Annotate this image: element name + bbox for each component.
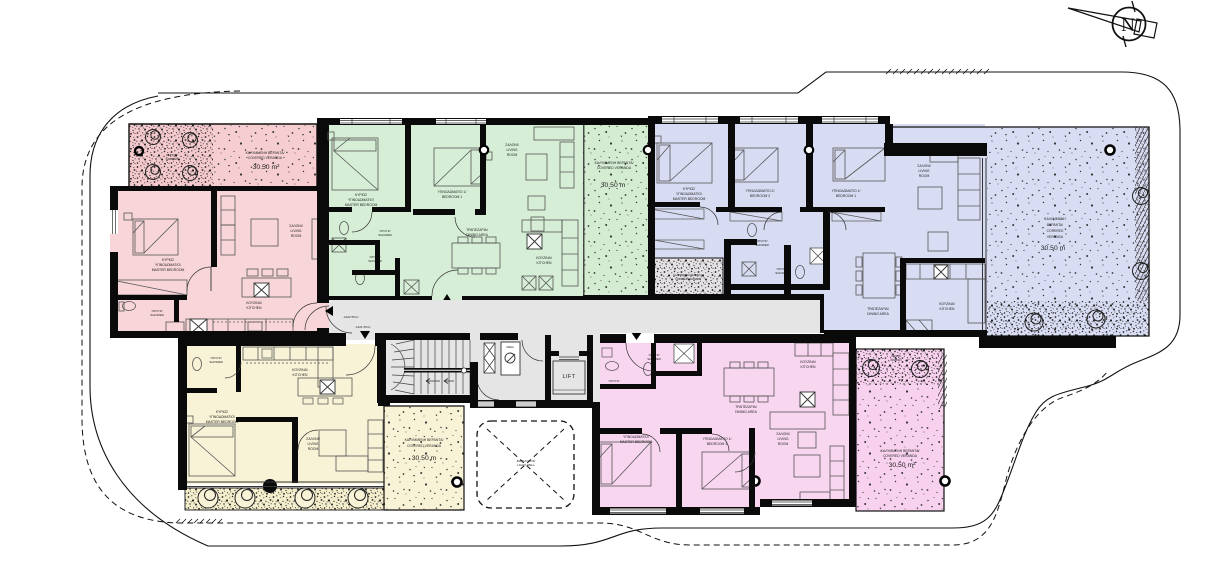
svg-text:ΥΠΝΟΔΩΜΑΤΙΟ 2/: ΥΠΝΟΔΩΜΑΤΙΟ 2/ [746, 189, 775, 193]
svg-text:BEDROOM 1: BEDROOM 1 [442, 195, 462, 199]
svg-text:ΣΑΛΟΝΙ/: ΣΑΛΟΝΙ/ [505, 143, 519, 147]
svg-text:Α101 55m²: Α101 55m² [356, 325, 371, 329]
svg-text:ΚΥΡΙΩΣ: ΚΥΡΙΩΣ [162, 258, 174, 262]
svg-text:SHOWER: SHOWER [150, 313, 164, 317]
svg-text:ΥΠΝΟΔΩΜΑΤΙΟ/: ΥΠΝΟΔΩΜΑΤΙΟ/ [676, 192, 702, 196]
svg-text:COVERED VERANDA: COVERED VERANDA [248, 156, 283, 160]
svg-text:KITCHEN: KITCHEN [293, 373, 308, 377]
svg-text:ΚΑΛΥΜΜΕΝΗ: ΚΑΛΥΜΜΕΝΗ [1044, 217, 1066, 221]
svg-text:GARDEN: GARDEN [890, 358, 901, 362]
svg-text:COVERED: COVERED [1047, 229, 1064, 233]
svg-text:ΣΑΛΟΝΙ/: ΣΑΛΟΝΙ/ [306, 437, 320, 441]
svg-text:SHOWER: SHOWER [378, 233, 392, 237]
svg-text:KITCHEN: KITCHEN [940, 307, 955, 311]
svg-text:30.50 m: 30.50 m [1041, 245, 1066, 252]
svg-text:KITCHEN: KITCHEN [537, 261, 552, 265]
svg-text:DINING AREA: DINING AREA [735, 410, 758, 414]
svg-text:LIVING: LIVING [307, 442, 318, 446]
svg-text:ΚΑΛΥΜΜΕΝΗ ΒΕΡΑΝΤΑ/: ΚΑΛΥΜΜΕΝΗ ΒΕΡΑΝΤΑ/ [595, 161, 634, 165]
svg-text:30.50 m²: 30.50 m² [889, 462, 917, 469]
svg-text:COVERED VERANDA: COVERED VERANDA [675, 277, 701, 281]
svg-text:BEDROOM 2: BEDROOM 2 [750, 194, 770, 198]
svg-text:30.50 m: 30.50 m [412, 455, 437, 462]
svg-text:N: N [1121, 15, 1135, 36]
svg-text:30.50 m²: 30.50 m² [253, 164, 281, 171]
svg-text:ΥΠΝΟΔΩΜΑΤΙΟ/: ΥΠΝΟΔΩΜΑΤΙΟ/ [348, 198, 374, 202]
svg-text:MASTER BEDROOM: MASTER BEDROOM [152, 268, 185, 272]
svg-text:LIVING: LIVING [290, 229, 301, 233]
svg-text:ROOM: ROOM [308, 447, 319, 451]
svg-text:MASTER BEDROOM: MASTER BEDROOM [620, 440, 653, 444]
svg-text:KITCHEN: KITCHEN [801, 365, 816, 369]
svg-text:ΚΥΡΙΩΣ: ΚΥΡΙΩΣ [355, 193, 367, 197]
svg-text:ΤΡΑΠΕΖΑΡΙΑ/: ΤΡΑΠΕΖΑΡΙΑ/ [466, 228, 488, 232]
svg-text:KITCHEN: KITCHEN [247, 306, 262, 310]
svg-text:SHOWER: SHOWER [755, 243, 769, 247]
svg-text:ΣΑΛΟΝΙ/: ΣΑΛΟΝΙ/ [776, 432, 790, 436]
svg-text:ROOM: ROOM [919, 174, 930, 178]
svg-text:ΚΟΥΖΙΝΑ/: ΚΟΥΖΙΝΑ/ [536, 256, 552, 260]
svg-text:MASTER BEDROOM: MASTER BEDROOM [206, 420, 239, 424]
svg-text:ΚΑΛΥΜΜΕΝΗ ΒΕΡΑΝΤΑ/: ΚΑΛΥΜΜΕΝΗ ΒΕΡΑΝΤΑ/ [881, 449, 920, 453]
svg-text:MASTER BEDROOM: MASTER BEDROOM [673, 197, 706, 201]
svg-text:ΥΠΝΟΔΩΜΑΤΙΟ 1/: ΥΠΝΟΔΩΜΑΤΙΟ 1/ [703, 437, 732, 441]
svg-text:ΒΕΡΑΝΤΑ/: ΒΕΡΑΝΤΑ/ [1047, 223, 1063, 227]
svg-text:ΤΡΑΠΕΖΑΡΙΑ/: ΤΡΑΠΕΖΑΡΙΑ/ [735, 405, 757, 409]
svg-text:COVERED VERANDA: COVERED VERANDA [597, 166, 632, 170]
svg-text:ΥΠΝΟΔΩΜΑΤΙΟ/: ΥΠΝΟΔΩΜΑΤΙΟ/ [623, 435, 649, 439]
svg-text:BEDROOM 1: BEDROOM 1 [836, 194, 856, 198]
svg-text:LIGHT WELL: LIGHT WELL [517, 463, 535, 467]
svg-text:DINING AREA: DINING AREA [867, 312, 890, 316]
svg-text:COVERED VERANDA: COVERED VERANDA [883, 454, 918, 458]
svg-text:ΣΑΛΟΝΙ/: ΣΑΛΟΝΙ/ [289, 224, 303, 228]
svg-text:ΚΗΠΟΣ/: ΚΗΠΟΣ/ [891, 354, 901, 358]
svg-text:LIFT: LIFT [562, 374, 575, 380]
svg-text:30.50 m: 30.50 m [601, 182, 626, 189]
svg-text:GARDEN: GARDEN [166, 157, 179, 161]
svg-text:ΤΡΑΠΕΖΑΡΙΑ/: ΤΡΑΠΕΖΑΡΙΑ/ [867, 307, 889, 311]
svg-text:COVERED VERANDA: COVERED VERANDA [407, 444, 442, 448]
svg-text:ROOM: ROOM [291, 234, 302, 238]
svg-text:ΚΑΛΥΜΜΕΝΗ ΒΕΡΑΝΤΑ/: ΚΑΛΥΜΜΕΝΗ ΒΕΡΑΝΤΑ/ [405, 438, 444, 442]
svg-text:ROOM: ROOM [778, 442, 789, 446]
svg-text:VERANDA: VERANDA [1047, 235, 1064, 239]
svg-text:ΥΠΝΟΔΩΜΑΤΙΟ/: ΥΠΝΟΔΩΜΑΤΙΟ/ [209, 415, 235, 419]
svg-text:ΚΥΡΙΩΣ: ΚΥΡΙΩΣ [683, 187, 695, 191]
svg-text:ΚΥΡΙΩΣ: ΚΥΡΙΩΣ [216, 410, 228, 414]
svg-text:ΚΑΛΥΜΜΕΝΗ ΒΕΡΑΝΤΑ/: ΚΑΛΥΜΜΕΝΗ ΒΕΡΑΝΤΑ/ [246, 151, 285, 155]
svg-text:ΥΠΝΟΔΩΜΑΤΙΟ/: ΥΠΝΟΔΩΜΑΤΙΟ/ [155, 263, 181, 267]
svg-text:ΚΟΥΖΙΝΑ/: ΚΟΥΖΙΝΑ/ [246, 301, 262, 305]
svg-text:ΚΟΥΖΙΝΑ/: ΚΟΥΖΙΝΑ/ [800, 360, 816, 364]
svg-text:ΥΠΝΟΔΩΜΑΤΙΟ 1/: ΥΠΝΟΔΩΜΑΤΙΟ 1/ [832, 189, 861, 193]
svg-text:MASTER BEDROOM: MASTER BEDROOM [345, 203, 378, 207]
svg-text:SHOWER: SHOWER [209, 360, 223, 364]
svg-text:ΚΑΛΥΜΜΕΝΗ ΒΕΡΑΝΤΑ/: ΚΑΛΥΜΜΕΝΗ ΒΕΡΑΝΤΑ/ [673, 273, 703, 277]
svg-text:LIVING: LIVING [506, 148, 517, 152]
svg-text:ΥΠΝΟΔΩΜΑΤΙΟ 1/: ΥΠΝΟΔΩΜΑΤΙΟ 1/ [438, 190, 467, 194]
svg-text:BEDROOM 1: BEDROOM 1 [707, 442, 727, 446]
svg-text:LIVING: LIVING [918, 169, 929, 173]
svg-text:ΚΟΥΖΙΝΑ/: ΚΟΥΖΙΝΑ/ [939, 302, 955, 306]
svg-text:Α102 55m²: Α102 55m² [344, 315, 359, 319]
svg-text:ΣΑΛΟΝΙ/: ΣΑΛΟΝΙ/ [917, 164, 931, 168]
svg-text:ROOM: ROOM [507, 153, 518, 157]
svg-text:ΚΟΥΖΙΝΑ/: ΚΟΥΖΙΝΑ/ [292, 368, 308, 372]
svg-text:ΑΜΕΑ: ΑΜΕΑ [506, 345, 514, 349]
svg-text:LIVING: LIVING [777, 437, 788, 441]
